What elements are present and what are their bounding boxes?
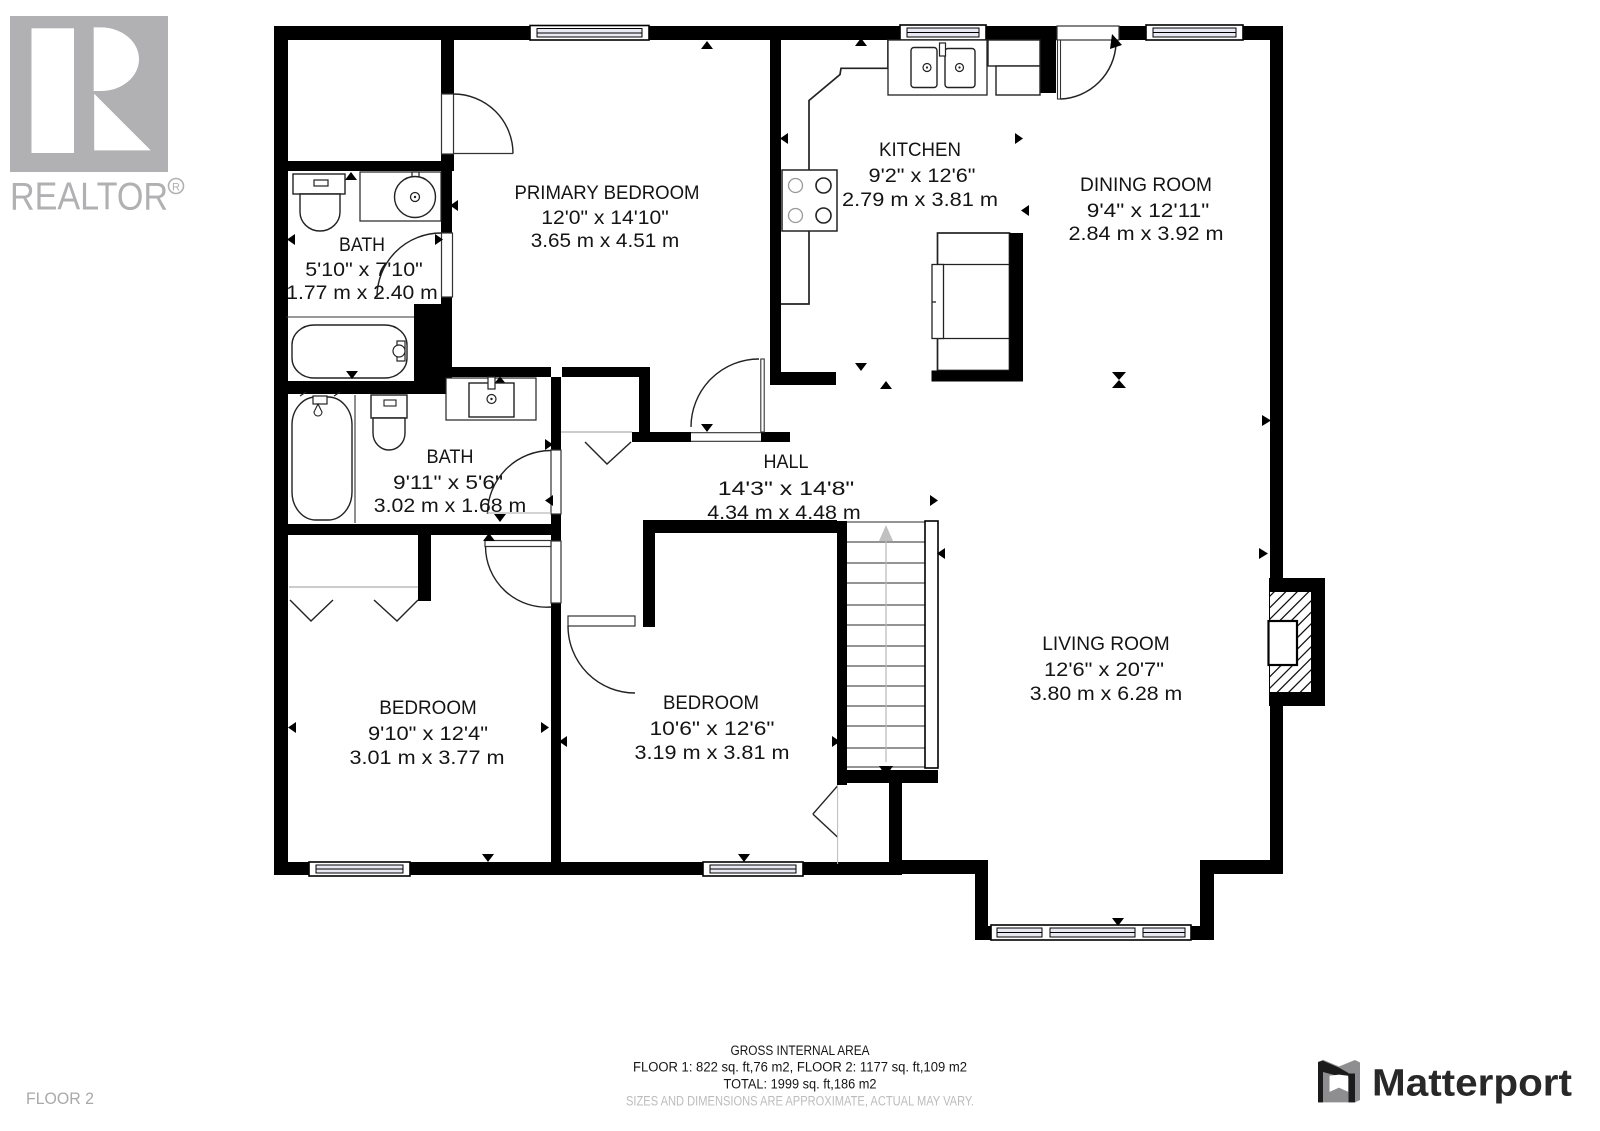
- svg-text:3.02 m x 1.68 m: 3.02 m x 1.68 m: [374, 495, 527, 517]
- svg-text:FLOOR 1: 822 sq. ft,76 m2, FLO: FLOOR 1: 822 sq. ft,76 m2, FLOOR 2: 1177…: [633, 1060, 967, 1075]
- svg-text:BATH: BATH: [339, 234, 385, 256]
- svg-text:12'0" x 14'10": 12'0" x 14'10": [541, 207, 669, 229]
- svg-text:2.84 m x 3.92 m: 2.84 m x 3.92 m: [1069, 223, 1224, 245]
- svg-text:REALTOR: REALTOR: [10, 176, 168, 219]
- svg-text:12'6" x 20'7": 12'6" x 20'7": [1044, 659, 1164, 681]
- svg-text:R: R: [172, 182, 180, 194]
- svg-text:4.34 m x 4.48 m: 4.34 m x 4.48 m: [707, 502, 861, 524]
- svg-text:9'10" x 12'4": 9'10" x 12'4": [368, 723, 488, 745]
- svg-text:LIVING ROOM: LIVING ROOM: [1042, 633, 1170, 655]
- svg-text:BATH: BATH: [427, 446, 474, 468]
- svg-text:GROSS INTERNAL AREA: GROSS INTERNAL AREA: [731, 1043, 870, 1058]
- svg-text:HALL: HALL: [764, 451, 809, 473]
- svg-text:BEDROOM: BEDROOM: [663, 692, 759, 714]
- svg-text:SIZES AND DIMENSIONS ARE APPRO: SIZES AND DIMENSIONS ARE APPROXIMATE, AC…: [626, 1094, 974, 1109]
- svg-text:9'2" x 12'6": 9'2" x 12'6": [869, 165, 976, 187]
- svg-text:9'4" x 12'11": 9'4" x 12'11": [1087, 200, 1210, 222]
- svg-text:BEDROOM: BEDROOM: [379, 697, 477, 719]
- svg-text:FLOOR 2: FLOOR 2: [26, 1090, 94, 1108]
- svg-text:1.77 m x 2.40 m: 1.77 m x 2.40 m: [286, 282, 438, 304]
- svg-text:3.19 m x 3.81 m: 3.19 m x 3.81 m: [635, 742, 790, 764]
- svg-text:9'11" x 5'6": 9'11" x 5'6": [393, 472, 503, 494]
- svg-text:14'3" x 14'8": 14'3" x 14'8": [718, 478, 855, 500]
- svg-text:Matterport: Matterport: [1372, 1063, 1572, 1105]
- svg-text:3.01 m x 3.77 m: 3.01 m x 3.77 m: [350, 747, 505, 769]
- svg-text:5'10" x 7'10": 5'10" x 7'10": [305, 259, 423, 281]
- svg-text:PRIMARY BEDROOM: PRIMARY BEDROOM: [515, 182, 700, 204]
- svg-text:KITCHEN: KITCHEN: [879, 139, 961, 161]
- svg-text:2.79 m x 3.81 m: 2.79 m x 3.81 m: [842, 189, 998, 211]
- svg-text:3.65 m x 4.51 m: 3.65 m x 4.51 m: [531, 230, 680, 252]
- svg-text:TOTAL: 1999 sq. ft,186 m2: TOTAL: 1999 sq. ft,186 m2: [724, 1077, 877, 1092]
- svg-text:3.80 m x 6.28 m: 3.80 m x 6.28 m: [1030, 683, 1183, 705]
- svg-text:10'6" x 12'6": 10'6" x 12'6": [650, 718, 775, 740]
- svg-text:DINING ROOM: DINING ROOM: [1080, 174, 1212, 196]
